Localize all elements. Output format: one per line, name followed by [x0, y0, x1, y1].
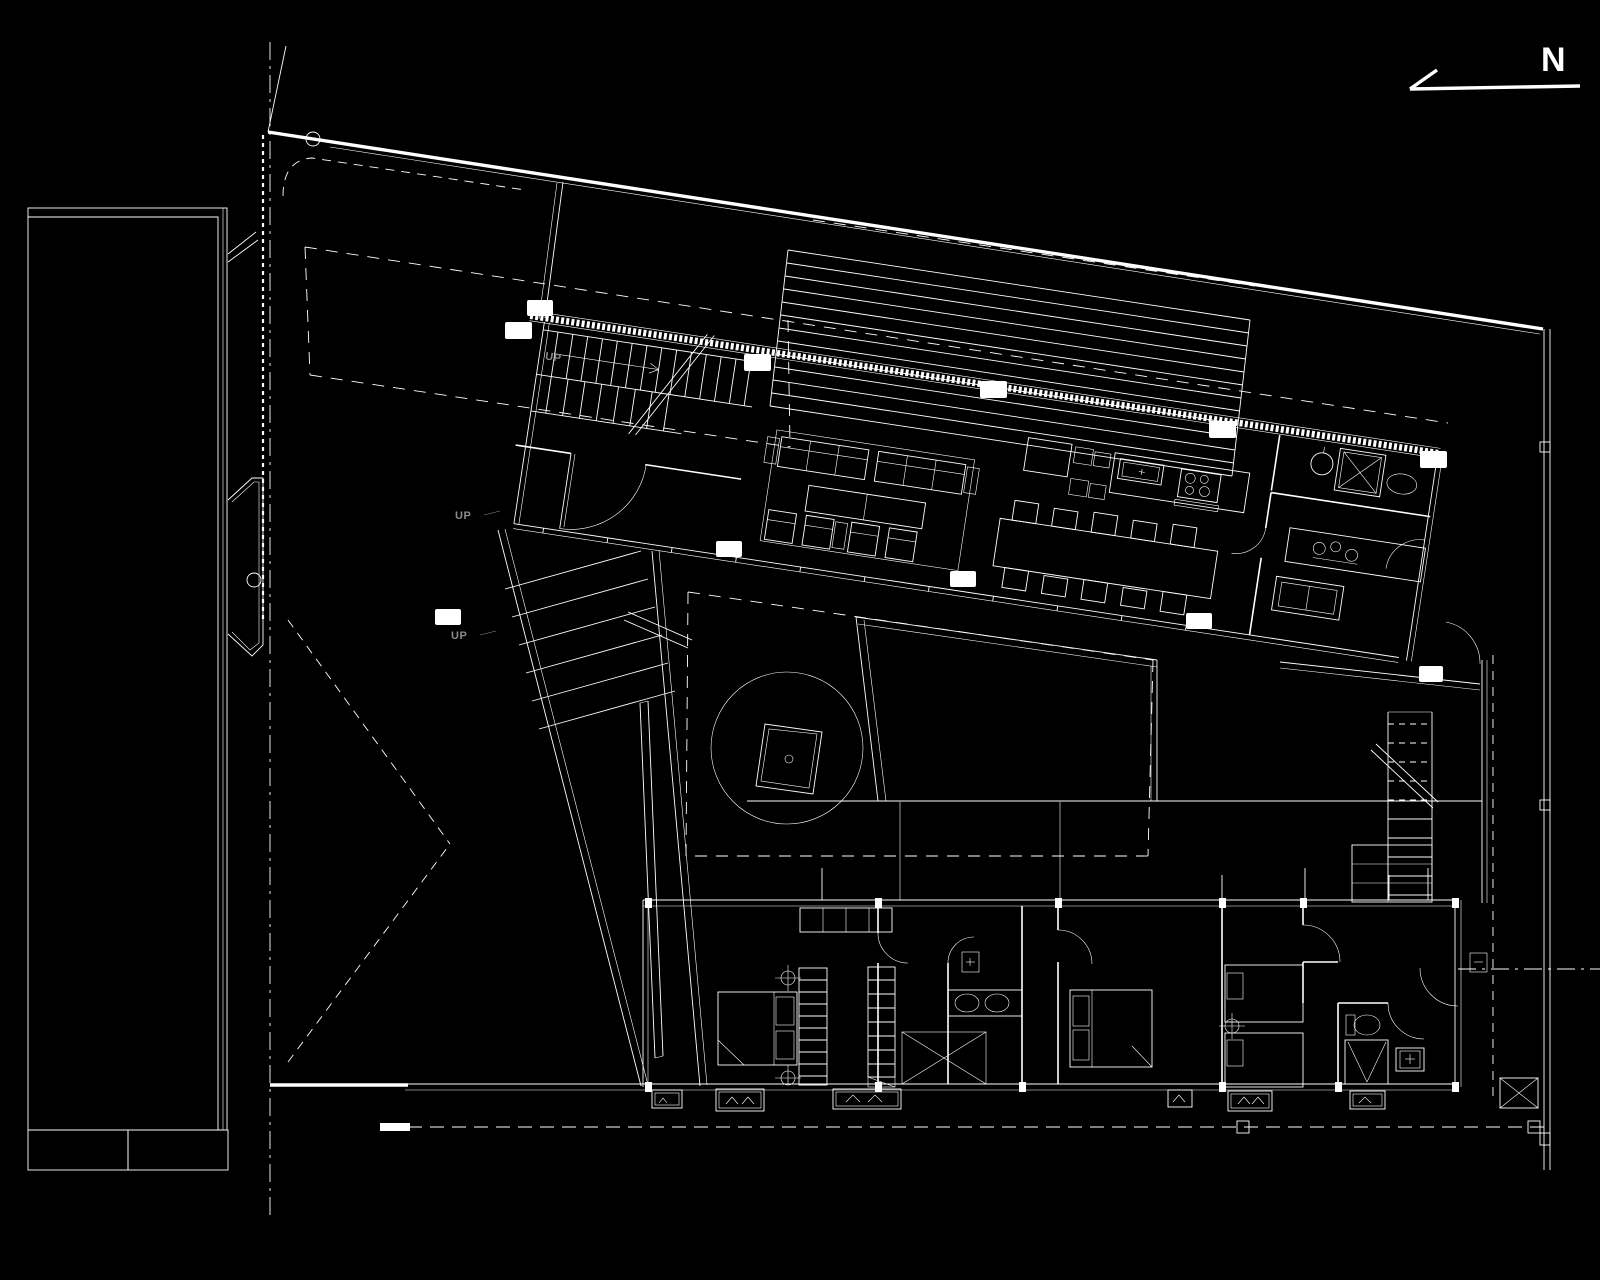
door-swing-arc — [1303, 925, 1340, 962]
door-swing-arc — [1446, 622, 1480, 664]
door-swing-arc — [878, 933, 908, 963]
bedroom-3 — [1219, 965, 1303, 1087]
stair-break-line — [1376, 744, 1438, 802]
window-mullions — [543, 528, 1186, 630]
pillow — [776, 997, 794, 1025]
door-swing-arc — [560, 453, 647, 540]
sofa — [874, 451, 965, 494]
courtyard — [686, 592, 1482, 900]
entry-door — [504, 445, 741, 554]
sink — [955, 994, 979, 1012]
window-tag — [527, 300, 553, 316]
stool — [1073, 447, 1093, 466]
armchairs — [764, 510, 917, 562]
stool — [1093, 452, 1111, 468]
window-sill — [1350, 1091, 1385, 1109]
closet — [868, 967, 895, 1087]
upper-terrace-wall — [539, 182, 563, 319]
window-tag — [1186, 613, 1212, 629]
dining-chairs — [1002, 500, 1197, 615]
door-swing-arc — [1386, 535, 1425, 574]
window-sill — [1228, 1091, 1272, 1111]
utility-bay — [228, 478, 263, 656]
door-swing-arc — [1232, 524, 1266, 558]
entry-east — [1458, 655, 1600, 1098]
bedroom-wing — [380, 655, 1600, 1133]
pillow — [1227, 1040, 1243, 1066]
shower — [1334, 448, 1386, 496]
window-tag — [716, 541, 742, 557]
side-table — [764, 437, 780, 465]
wall-junctions — [645, 898, 1459, 1092]
window-tag — [1209, 421, 1236, 438]
tree-planter — [756, 724, 822, 794]
west-wall-window — [514, 322, 545, 524]
door-swing-arc — [1388, 1003, 1424, 1039]
kitchen-cabinet — [1024, 438, 1072, 477]
north-arrow: N — [1410, 41, 1580, 89]
tree-trunk-icon — [785, 755, 793, 763]
coffee-table — [805, 485, 926, 528]
bed — [1070, 990, 1152, 1067]
south-wall-window — [514, 524, 1399, 658]
window-sills — [652, 1078, 1538, 1111]
bed — [718, 992, 797, 1065]
wall-light-icon — [1219, 1013, 1245, 1039]
north-label: N — [1541, 41, 1566, 79]
floor-plan-canvas: N — [0, 0, 1600, 1280]
window-tag — [1420, 451, 1447, 468]
bathroom-middle — [902, 952, 1022, 1084]
living-room — [752, 429, 980, 572]
shower — [902, 1032, 986, 1084]
window-tag — [435, 609, 461, 625]
canopy-dash-outline — [686, 592, 1153, 856]
bed — [1225, 1033, 1303, 1087]
sink — [1396, 1048, 1424, 1071]
window-sill — [652, 1090, 682, 1108]
laundry — [1285, 528, 1426, 582]
carport-roof-dashes — [288, 620, 450, 1062]
pillow — [1073, 996, 1089, 1026]
site-boundary — [263, 42, 1550, 1215]
door-swing-arc — [1058, 930, 1092, 964]
wash-basin — [1309, 451, 1334, 476]
walkway-up-label: UP — [451, 630, 467, 642]
pillow — [1073, 1030, 1089, 1060]
cooktop — [1174, 469, 1223, 512]
boundary-north — [268, 132, 1543, 329]
entry-door-arc — [1420, 968, 1458, 1006]
wing-bathroom — [1220, 425, 1443, 662]
roof-overhang-dashes — [305, 220, 1448, 447]
pillow — [776, 1031, 794, 1059]
tub — [1385, 472, 1418, 496]
toilet — [1346, 1015, 1380, 1035]
neighbor-annex — [28, 1130, 128, 1170]
pillow — [1227, 973, 1243, 999]
window-tag — [505, 322, 532, 339]
laundry-sink — [1312, 542, 1326, 556]
wall-light-icon — [775, 965, 801, 991]
window-tag — [980, 381, 1007, 398]
bedroom-master — [718, 908, 895, 1087]
sink — [985, 994, 1009, 1012]
sofa — [777, 437, 868, 480]
stair-up-label: UP — [544, 351, 562, 365]
shower — [1345, 1040, 1388, 1084]
south-setback — [380, 1121, 1545, 1133]
stool — [1069, 478, 1089, 497]
entry-walkway: UP UP — [451, 510, 707, 1086]
planter-box — [1500, 1078, 1538, 1108]
bathroom-3 — [1345, 1015, 1424, 1084]
walkway-up-label: UP — [455, 510, 471, 522]
window-sill — [833, 1089, 901, 1109]
wardrobe — [799, 968, 827, 1085]
stool — [1088, 483, 1106, 499]
bedroom-2 — [1070, 990, 1152, 1067]
rug — [760, 430, 974, 571]
wall-light-icon — [775, 1065, 801, 1085]
window-tag — [744, 354, 771, 371]
neighbor-building — [28, 208, 263, 1170]
north-arrowhead-icon — [1410, 70, 1437, 89]
window-tag — [1419, 666, 1443, 682]
counter-l — [1352, 845, 1432, 902]
louvre-roof — [770, 250, 1250, 476]
window-tag — [950, 571, 976, 587]
pool — [856, 617, 1157, 801]
garden-steps — [505, 551, 675, 729]
window-sill — [716, 1089, 764, 1111]
bed — [1225, 965, 1303, 1022]
laundry-island — [1272, 576, 1344, 620]
window-sill — [1168, 1090, 1192, 1107]
east-stair — [1280, 622, 1487, 903]
